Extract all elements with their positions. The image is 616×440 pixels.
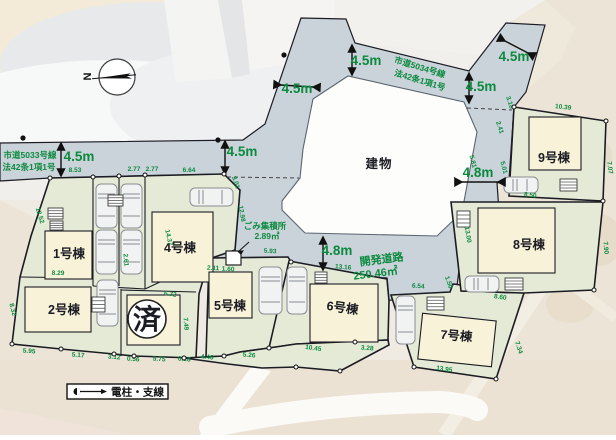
svg-text:2.77: 2.77 (146, 166, 159, 173)
svg-text:2.77: 2.77 (128, 166, 141, 173)
svg-text:2.61: 2.61 (121, 253, 129, 267)
svg-text:7.49: 7.49 (181, 317, 189, 331)
svg-text:市道5033号線: 市道5033号線 (4, 150, 57, 160)
svg-text:9号棟: 9号棟 (538, 150, 570, 165)
svg-text:3.28: 3.28 (361, 344, 375, 352)
svg-text:4.5m: 4.5m (64, 149, 95, 164)
svg-text:13.16: 13.16 (335, 263, 352, 271)
svg-text:5号棟: 5号棟 (214, 298, 246, 313)
svg-text:5.26: 5.26 (243, 352, 256, 360)
svg-text:済: 済 (133, 304, 162, 335)
svg-text:8号棟: 8号棟 (513, 237, 545, 252)
svg-text:1号棟: 1号棟 (53, 246, 85, 261)
svg-text:5.93: 5.93 (264, 248, 277, 256)
svg-text:5.17: 5.17 (72, 352, 85, 360)
svg-text:4.8m: 4.8m (463, 165, 494, 180)
svg-text:4.5m: 4.5m (351, 53, 382, 68)
svg-text:2.11: 2.11 (207, 265, 220, 273)
svg-text:法42条1項1号: 法42条1項1号 (3, 162, 56, 172)
svg-text:6.64: 6.64 (183, 167, 196, 174)
svg-text:2.89㎡: 2.89㎡ (254, 231, 280, 241)
svg-text:5.95: 5.95 (23, 348, 36, 356)
svg-text:ごみ集積所: ごみ集積所 (244, 221, 287, 231)
svg-text:1.60: 1.60 (222, 266, 235, 274)
svg-text:建物: 建物 (365, 156, 392, 171)
svg-text:8.29: 8.29 (52, 270, 65, 277)
svg-text:7号棟: 7号棟 (440, 327, 474, 345)
svg-text:N: N (82, 72, 94, 80)
svg-text:4.5m: 4.5m (282, 81, 313, 96)
svg-text:4.46: 4.46 (201, 354, 214, 362)
svg-text:4.5m: 4.5m (499, 49, 530, 64)
svg-text:8.53: 8.53 (69, 167, 82, 174)
svg-text:4.5m: 4.5m (227, 144, 258, 159)
svg-text:4.8m: 4.8m (322, 243, 353, 258)
svg-text:7.90: 7.90 (601, 241, 609, 255)
svg-text:2号棟: 2号棟 (48, 302, 80, 317)
svg-text:4.5m: 4.5m (466, 79, 497, 94)
svg-text:5.75: 5.75 (153, 356, 166, 364)
svg-text:6.54: 6.54 (412, 282, 426, 290)
svg-text:電柱・支線: 電柱・支線 (111, 386, 165, 399)
